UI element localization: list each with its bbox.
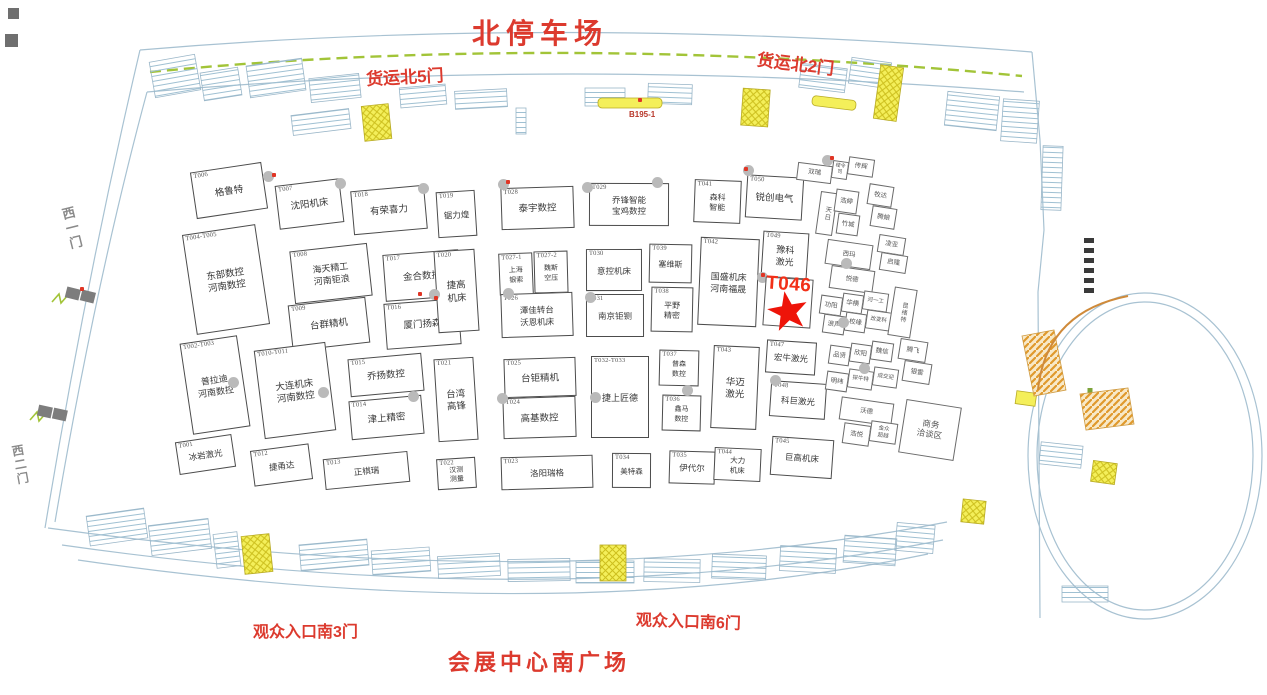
red-marker [744,167,748,171]
booth-name: 意控机床 [587,250,641,290]
booth-t021: T021台湾 高锋 [433,357,478,442]
red-marker [830,156,834,160]
mini-booth: 欣阳 [849,343,872,365]
south-entrance-3-label: 观众入口南3门 [253,618,358,642]
booth-name: 魏斯 空压 [534,252,567,293]
booth-t008: T008海天精工 河南钜浪 [289,243,372,304]
booth-t025: T025台钜精机 [503,357,576,398]
booth-name: 泰宇数控 [501,187,573,229]
booth-name: 宏牛激光 [766,340,816,374]
booth-t018: T018有荣喜力 [350,185,428,235]
booth-name: 普拉迪 河南数控 [181,336,250,433]
booth-name: 美特森 [613,454,650,487]
booth-t034: T034美特森 [612,453,651,488]
booth-name: 伊代尔 [670,451,715,483]
pillar-dot [682,385,693,396]
mini-booth: 成交迎 [872,366,899,388]
booth-name: 台钜精机 [504,358,575,397]
mini-booth: 魏信 [870,341,894,363]
mini-booth: 商务 洽谈区 [898,399,962,461]
booth-name: 沈阳机床 [276,179,344,228]
booth-t004-t005: T004-T005东部数控 河南数控 [182,224,270,335]
mini-booth: 腾飞 [898,338,929,363]
pillar-dot [497,393,508,404]
pillar-dot [335,178,346,189]
south-plaza-label: 会展中心南广场 [448,645,630,677]
booth-name: 海天精工 河南钜浪 [290,244,371,303]
booth-t022: T022汉测 测量 [436,457,477,490]
booth-t030: T030意控机床 [586,249,642,291]
pillar-dot [590,392,601,403]
booth-name: 豫科 激光 [762,232,809,279]
booth-name: 科巨激光 [770,381,826,419]
mini-booth: 华横 [841,293,864,315]
mini-booth: 悦德 [829,265,876,294]
pillar-dot [838,317,849,328]
pillar-dot [408,391,419,402]
booth-t045: T045巨高机床 [770,436,835,479]
booth-t047: T047宏牛激光 [765,339,817,375]
booth-t002-t003: T002-T003普拉迪 河南数控 [180,335,251,435]
red-marker [418,292,422,296]
pillar-dot [841,258,852,269]
booth-name: 高基数控 [503,397,575,438]
booth-name: 华迈 激光 [711,346,759,429]
booth-name: 津上精密 [349,396,423,439]
red-marker [506,180,510,184]
booth-t048: T048科巨激光 [769,380,827,420]
mini-booth: 竹城 [836,213,861,237]
pillar-dot [582,182,593,193]
mini-booth: 金众 超越 [869,420,899,445]
booth-name: 锯力煌 [437,191,477,237]
booth-name: 正棋瑞 [324,452,409,489]
red-marker [761,273,765,277]
red-marker [80,287,84,291]
booth-name: 格鲁特 [191,163,267,218]
booth-t019: T019锯力煌 [436,190,478,238]
location-star-icon [765,289,811,335]
north-parking-label: 北停车场 [472,12,608,52]
mini-booth: 昆绪特 [887,287,917,339]
pillar-dot [503,288,514,299]
pillar-dot [585,292,596,303]
booth-name: 南京钜铡 [587,295,643,336]
booth-t006: T006格鲁特 [190,162,268,219]
pillar-dot [318,387,329,398]
mini-booth: 功阳 [819,295,843,317]
pillar-dot [652,177,663,188]
mini-booth: 明纬 [825,371,849,393]
booth-t050: T050锐创电气 [745,174,804,220]
booth-name: 乔锋智能 宝鸡数控 [590,184,668,225]
booth-name: 东部数控 河南数控 [183,225,269,334]
booth-name: 森科 智能 [694,180,741,223]
booth-t024: T024高基数控 [502,396,576,439]
booth-name: 捷甬达 [251,444,312,485]
booth-t036: T036鑫马 数控 [662,395,702,432]
booth-name: 洛阳瑞格 [502,456,593,490]
booth-t001: T001冰岩激光 [175,434,236,475]
pillar-dot [859,363,870,374]
exhibition-floorplan: T006格鲁特T007沈阳机床T018有荣喜力T019锯力煌T028泰宇数控T0… [0,0,1267,695]
booth-t039: T039塞维斯 [649,244,693,284]
booth-name: 有荣喜力 [351,186,426,234]
south-entrance-6-label: 观众入口南6门 [636,606,742,634]
booth-name: 国盛机床 河南福晟 [698,238,759,326]
booth-name: 巨高机床 [771,437,833,478]
booth-t042: T042国盛机床 河南福晟 [697,237,760,327]
booth-t044: T044大力 机床 [713,447,761,482]
booth-name: 塞维斯 [650,245,692,283]
booth-t035: T035伊代尔 [669,450,716,484]
booth-name: 冰岩激光 [176,435,235,474]
mini-booth: 启隆 [879,252,908,274]
red-marker [638,98,642,102]
booth-name: 捷高 机床 [435,250,479,332]
mini-booth: 牧达 [867,183,895,208]
booth-t012: T012捷甬达 [250,443,313,486]
booth-t041: T041森科 智能 [693,179,742,224]
booth-t020: T020捷高 机床 [433,249,479,333]
booth-t023: T023洛阳瑞格 [501,455,594,491]
booth-t026: T026潭佳转台 沃恩机床 [500,292,573,338]
pillar-dot [228,377,239,388]
booth-name: 台群精机 [289,298,369,350]
booth-name: 大力 机床 [714,448,760,481]
red-marker [272,173,276,177]
booth-t037: T037普森 数控 [659,350,700,387]
pillar-dot [770,375,781,386]
booth-name: 普森 数控 [660,351,699,386]
freight-gate-5-label: 货运北5门 [365,61,444,90]
booth-t028: T028泰宇数控 [500,186,574,230]
booth-name: 汉测 测量 [437,458,476,489]
mini-booth: 银雷 [902,360,933,385]
booth-layer: T006格鲁特T007沈阳机床T018有荣喜力T019锯力煌T028泰宇数控T0… [0,0,1267,695]
mini-booth: 浩悦 [842,422,872,447]
booth-name: 鑫马 数控 [663,396,701,431]
booth-t043: T043华迈 激光 [710,345,760,430]
pillar-dot [418,183,429,194]
booth-t007: T007沈阳机床 [275,178,345,229]
mini-booth: 浩婷 [834,189,860,215]
red-marker [434,296,438,300]
booth-name: 平野 精密 [652,288,693,332]
mini-booth: 品贤 [828,345,851,367]
mini-booth: 河一工 [862,290,889,312]
booth-t027-2: T027-2魏斯 空压 [533,251,568,294]
booth-name: 乔扬数控 [349,354,424,396]
booth-name: 潭佳转台 沃恩机床 [501,293,572,337]
booth-t029: T029乔锋智能 宝鸡数控 [589,183,669,226]
mini-booth: 腾娘 [870,205,898,230]
zone-code-label: B195-1 [629,110,655,119]
mini-booth: 传辉 [847,156,875,177]
booth-t009: T009台群精机 [288,297,371,351]
booth-name: 锐创电气 [746,175,803,219]
booth-t013: T013正棋瑞 [323,451,411,490]
booth-name: 台湾 高锋 [434,358,477,441]
booth-t038: T038平野 精密 [651,287,694,333]
